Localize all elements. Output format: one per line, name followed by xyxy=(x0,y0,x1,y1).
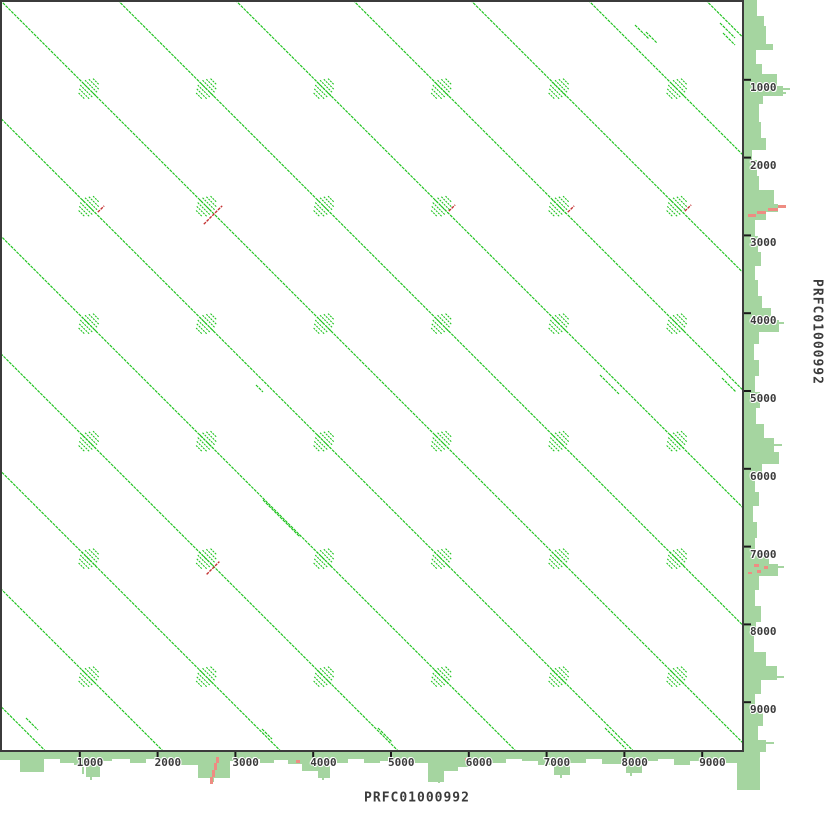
repeat-cluster-hatch xyxy=(441,314,451,324)
right-histogram-bar xyxy=(744,360,759,376)
bottom-histogram-red-mark xyxy=(296,760,300,763)
repeat-cluster-hatch xyxy=(549,89,559,99)
bottom-histogram-red-mark xyxy=(212,770,215,777)
repeat-cluster-hatch xyxy=(89,79,99,89)
repeat-cluster-hatch xyxy=(432,206,442,216)
forward-match-diagonal xyxy=(2,2,467,750)
forward-match-diagonal xyxy=(118,2,742,750)
right-histogram-bar xyxy=(744,252,761,266)
bottom-histogram-bar xyxy=(444,752,458,771)
right-histogram-bar xyxy=(744,492,759,506)
bottom-histogram-red-mark xyxy=(210,777,213,784)
repeat-cluster-hatch xyxy=(324,79,334,89)
match-fragment xyxy=(605,728,626,749)
x-tick-label: 4000 xyxy=(310,757,337,768)
right-histogram-bar xyxy=(744,606,761,622)
x-tick-label: 1000 xyxy=(77,757,104,768)
right-histogram-red-mark xyxy=(768,208,778,211)
bottom-histogram-red-mark xyxy=(216,757,219,763)
y-tick-label: 6000 xyxy=(750,471,777,482)
match-fragment xyxy=(723,33,735,45)
repeat-cluster-hatch xyxy=(441,667,451,677)
repeat-cluster-hatch xyxy=(432,324,442,334)
y-tick-label: 1000 xyxy=(750,82,777,93)
repeat-cluster-hatch xyxy=(677,549,687,559)
repeat-cluster-hatch xyxy=(549,559,559,569)
repeat-cluster-hatch xyxy=(314,441,324,451)
forward-match-diagonal xyxy=(353,2,742,750)
repeat-cluster-hatch xyxy=(677,667,687,677)
repeat-cluster-hatch xyxy=(197,559,207,569)
x-tick-label: 2000 xyxy=(155,757,182,768)
repeat-cluster-hatch xyxy=(79,89,89,99)
right-histogram-bar xyxy=(744,104,759,122)
y-tick-label: 7000 xyxy=(750,549,777,560)
bottom-histogram-bar xyxy=(60,752,74,763)
bottom-histogram-bar xyxy=(658,752,674,759)
match-fragment xyxy=(720,23,735,38)
right-histogram-bar xyxy=(744,424,764,438)
repeat-cluster-hatch xyxy=(79,441,89,451)
repeat-cluster-hatch xyxy=(324,197,334,207)
repeat-cluster-hatch xyxy=(677,432,687,442)
repeat-cluster-hatch xyxy=(197,206,207,216)
match-fragment xyxy=(263,500,300,537)
repeat-cluster-hatch xyxy=(677,314,687,324)
right-histogram-bar xyxy=(744,26,766,44)
right-histogram-red-mark xyxy=(748,214,756,217)
right-histogram-bar xyxy=(744,522,757,538)
repeat-cluster-hatch xyxy=(324,314,334,324)
right-histogram-bar xyxy=(744,726,758,740)
repeat-cluster-hatch xyxy=(441,549,451,559)
y-tick-label: 4000 xyxy=(750,315,777,326)
repeat-cluster-hatch xyxy=(667,559,677,569)
forward-match-diagonal xyxy=(588,2,742,750)
repeat-cluster-hatch xyxy=(559,79,569,89)
right-histogram-bar xyxy=(744,408,756,424)
repeat-cluster-hatch xyxy=(549,206,559,216)
match-fragment xyxy=(256,385,263,392)
repeat-cluster-hatch xyxy=(79,677,89,687)
repeat-cluster-hatch xyxy=(206,667,216,677)
right-histogram-red-mark xyxy=(778,205,786,208)
repeat-cluster-hatch xyxy=(549,324,559,334)
right-histogram-bar xyxy=(744,190,774,204)
right-histogram-bar xyxy=(744,50,756,64)
repeat-cluster-hatch xyxy=(559,197,569,207)
right-histogram-red-mark xyxy=(754,564,759,567)
right-histogram-red-mark xyxy=(757,211,766,214)
x-axis-title: PRFC01000992 xyxy=(364,791,470,806)
forward-match-diagonal xyxy=(2,2,350,750)
dotplot-matches-layer xyxy=(2,2,742,750)
right-histogram-bar xyxy=(744,138,766,150)
repeat-cluster-hatch xyxy=(314,324,324,334)
repeat-cluster-hatch xyxy=(89,549,99,559)
repeat-cluster-hatch xyxy=(667,89,677,99)
repeat-cluster-hatch xyxy=(89,667,99,677)
repeat-cluster-hatch xyxy=(206,79,216,89)
repeat-cluster-hatch xyxy=(549,677,559,687)
bottom-histogram-bar xyxy=(586,752,602,759)
right-histogram-spike xyxy=(744,742,774,744)
repeat-cluster-hatch xyxy=(667,206,677,216)
right-histogram-bar xyxy=(744,220,755,236)
inverted-match-mark xyxy=(568,206,574,212)
repeat-cluster-hatch xyxy=(197,89,207,99)
inverted-match-mark xyxy=(98,206,104,212)
right-histogram-red-mark xyxy=(764,566,768,569)
x-tick-label: 7000 xyxy=(544,757,571,768)
repeat-cluster-hatch xyxy=(89,314,99,324)
match-fragment xyxy=(26,718,38,730)
bottom-histogram-bar xyxy=(428,752,444,782)
repeat-cluster-hatch xyxy=(79,206,89,216)
forward-match-diagonal xyxy=(2,2,742,750)
repeat-cluster-hatch xyxy=(206,432,216,442)
right-histogram-bar xyxy=(744,296,762,308)
inverted-match-mark xyxy=(207,562,220,575)
right-histogram-bar xyxy=(744,280,758,296)
repeat-cluster-hatch xyxy=(314,206,324,216)
repeat-cluster-hatch xyxy=(432,441,442,451)
repeat-cluster-hatch xyxy=(549,441,559,451)
repeat-cluster-hatch xyxy=(79,324,89,334)
right-histogram-bar xyxy=(744,122,761,138)
repeat-cluster-hatch xyxy=(432,677,442,687)
repeat-cluster-hatch xyxy=(667,441,677,451)
repeat-cluster-hatch xyxy=(314,559,324,569)
right-histogram-bar xyxy=(744,590,755,606)
right-histogram-bar xyxy=(744,740,766,752)
repeat-cluster-hatch xyxy=(206,197,216,207)
bottom-histogram-red-mark xyxy=(214,763,217,770)
match-fragment xyxy=(635,25,649,39)
right-histogram-bar xyxy=(744,176,759,190)
right-histogram-bar xyxy=(744,344,754,360)
x-tick-label: 3000 xyxy=(232,757,259,768)
repeat-cluster-hatch xyxy=(79,559,89,569)
forward-match-diagonal xyxy=(470,2,742,750)
match-fragment xyxy=(378,728,392,742)
repeat-cluster-hatch xyxy=(89,197,99,207)
right-histogram-spike xyxy=(744,444,782,446)
dotplot-plot-area xyxy=(0,0,744,752)
right-histogram-bar xyxy=(744,452,779,464)
right-histogram-bar xyxy=(744,376,755,392)
right-histogram-bar xyxy=(744,332,759,344)
bottom-histogram-bar xyxy=(506,752,522,759)
bottom-histogram-bar xyxy=(348,752,364,759)
bottom-histogram-bar xyxy=(112,752,130,759)
repeat-cluster-hatch xyxy=(667,324,677,334)
bottom-histogram-bar xyxy=(570,752,586,763)
repeat-cluster-hatch xyxy=(197,677,207,687)
bottom-histogram-bar xyxy=(674,752,690,765)
bottom-histogram-bar xyxy=(20,752,44,772)
x-tick-label: 8000 xyxy=(621,757,648,768)
forward-match-diagonal xyxy=(706,2,742,750)
y-tick-label: 3000 xyxy=(750,237,777,248)
repeat-cluster-hatch xyxy=(324,549,334,559)
y-tick-label: 8000 xyxy=(750,626,777,637)
bottom-histogram-bar xyxy=(274,752,288,760)
repeat-cluster-hatch xyxy=(677,79,687,89)
x-tick-label: 5000 xyxy=(388,757,415,768)
right-histogram-bar xyxy=(744,636,754,652)
bottom-histogram-bar xyxy=(364,752,380,763)
repeat-cluster-hatch xyxy=(432,559,442,569)
forward-match-diagonal xyxy=(2,2,232,750)
right-histogram-bar xyxy=(744,576,759,590)
dotplot-figure: 100020003000400050006000700080009000 100… xyxy=(0,0,830,830)
repeat-cluster-hatch xyxy=(441,197,451,207)
right-histogram-red-mark xyxy=(748,572,752,574)
right-histogram-spike xyxy=(744,676,784,678)
right-histogram-bar xyxy=(744,64,762,74)
repeat-cluster-hatch xyxy=(559,314,569,324)
right-histogram-bar xyxy=(744,652,766,666)
right-histogram-red-mark xyxy=(757,570,761,573)
bottom-histogram-bar xyxy=(260,752,274,763)
repeat-cluster-hatch xyxy=(197,441,207,451)
match-fragment xyxy=(600,375,619,394)
y-tick-label: 5000 xyxy=(750,393,777,404)
repeat-cluster-hatch xyxy=(432,89,442,99)
repeat-cluster-hatch xyxy=(667,677,677,687)
match-fragment xyxy=(722,378,736,392)
repeat-cluster-hatch xyxy=(677,197,687,207)
repeat-cluster-hatch xyxy=(559,432,569,442)
forward-match-diagonal xyxy=(2,2,585,750)
right-histogram-bar xyxy=(744,16,764,26)
forward-match-diagonal xyxy=(235,2,742,750)
y-tick-label: 2000 xyxy=(750,160,777,171)
y-tick-label: 9000 xyxy=(750,704,777,715)
repeat-cluster-hatch xyxy=(197,324,207,334)
y-axis-title: PRFC01000992 xyxy=(810,279,825,385)
repeat-cluster-hatch xyxy=(89,432,99,442)
right-histogram-bar xyxy=(744,266,755,280)
bottom-histogram-spike xyxy=(438,752,440,783)
repeat-cluster-hatch xyxy=(559,667,569,677)
right-histogram-bar xyxy=(744,0,757,16)
bottom-histogram-bar xyxy=(737,752,760,790)
repeat-cluster-hatch xyxy=(324,432,334,442)
forward-match-diagonal xyxy=(2,2,114,750)
repeat-cluster-hatch xyxy=(559,549,569,559)
right-histogram-bar xyxy=(744,96,763,104)
repeat-cluster-hatch xyxy=(324,667,334,677)
right-histogram-spike xyxy=(744,206,782,208)
forward-match-diagonal xyxy=(2,2,702,750)
x-tick-label: 6000 xyxy=(466,757,493,768)
bottom-histogram-bar xyxy=(0,752,20,760)
repeat-cluster-hatch xyxy=(206,549,216,559)
repeat-cluster-hatch xyxy=(441,79,451,89)
repeat-cluster-hatch xyxy=(441,432,451,442)
x-tick-label: 9000 xyxy=(699,757,726,768)
repeat-cluster-hatch xyxy=(314,89,324,99)
right-histogram-bar xyxy=(744,680,761,694)
bottom-histogram-bar xyxy=(130,752,146,763)
bottom-histogram-bar xyxy=(522,752,538,761)
right-histogram-bar xyxy=(744,506,753,522)
bottom-histogram-bar xyxy=(44,752,60,759)
repeat-cluster-hatch xyxy=(314,677,324,687)
repeat-cluster-hatch xyxy=(206,314,216,324)
right-histogram-bar xyxy=(744,44,773,50)
